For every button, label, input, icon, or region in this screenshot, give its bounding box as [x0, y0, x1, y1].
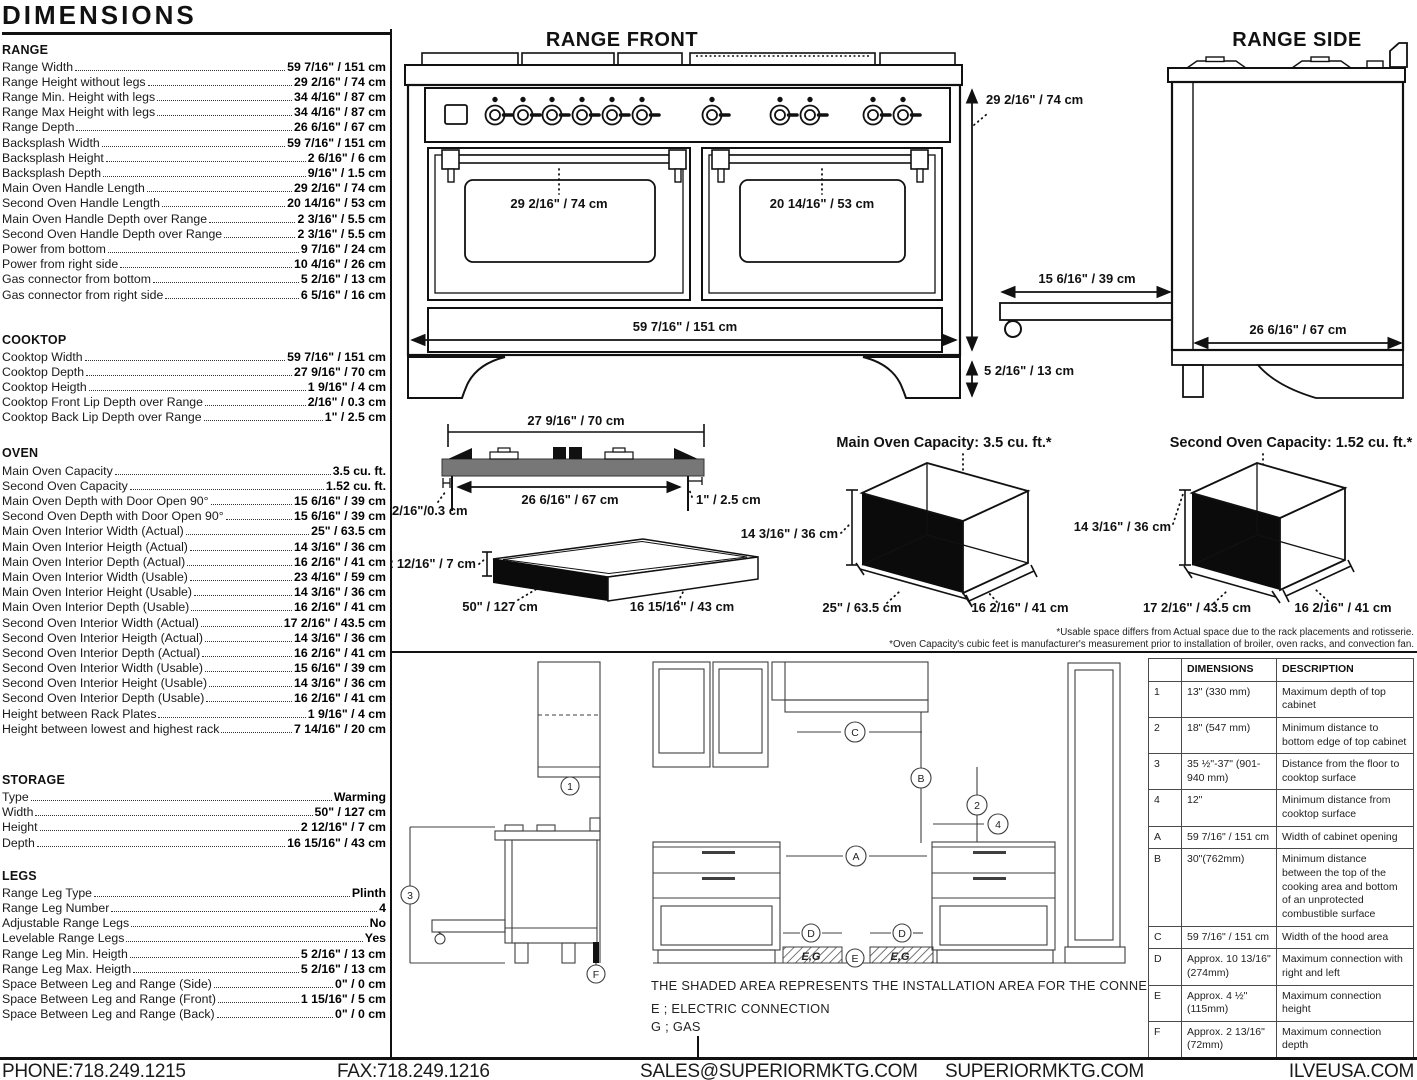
side-bottom-band	[1172, 350, 1403, 365]
spec-label: Main Oven Interior Width (Actual)	[2, 524, 184, 538]
dot-leader	[115, 474, 331, 475]
row-description: Minimum distance between the top of the …	[1277, 849, 1414, 926]
storage-drawer-drawing: 2 12/16" / 7 cm 50" / 127 cm 16 15/16" /…	[390, 539, 758, 614]
spec-row: Main Oven Handle Length 29 2/16" / 74 cm	[2, 180, 386, 195]
spec-sheet-page: DIMENSIONS RANGE Range Width 59 7/16" / …	[0, 0, 1417, 1080]
dot-leader	[130, 957, 299, 958]
spec-value: 1 9/16" / 4 cm	[308, 707, 386, 721]
spec-label: Height between lowest and highest rack	[2, 722, 219, 736]
oven-window	[465, 180, 655, 262]
dot-leader	[226, 519, 292, 520]
spec-value: 2 12/16" / 7 cm	[301, 820, 386, 834]
drawings-top: RANGE FRONT	[390, 28, 1417, 655]
dot-leader	[205, 671, 292, 672]
spec-value: No	[370, 916, 386, 930]
dot-leader	[218, 1002, 299, 1003]
spec-row: Main Oven Interior Heigth (Actual) 14 3/…	[2, 538, 386, 553]
spec-label: Cooktop Front Lip Depth over Range	[2, 395, 203, 409]
spec-row: Range Depth 26 6/16" / 67 cm	[2, 119, 386, 134]
knob-icon	[801, 98, 828, 125]
dot-leader	[165, 298, 299, 299]
spec-label: Adjustable Range Legs	[2, 916, 129, 930]
spec-row: Main Oven Interior Depth (Actual) 16 2/1…	[2, 554, 386, 569]
spec-label: Space Between Leg and Range (Front)	[2, 992, 216, 1006]
svg-text:C: C	[851, 727, 859, 739]
row-key: 1	[1149, 681, 1182, 717]
row-key: F	[1149, 1021, 1182, 1057]
spec-label: Cooktop Width	[2, 350, 83, 364]
row-dimension: Approx. 2 13/16" (72mm)	[1182, 1021, 1277, 1057]
spec-label: Range Width	[2, 60, 73, 74]
dot-leader	[211, 504, 292, 505]
row-description: Width of the hood area	[1277, 926, 1414, 949]
spec-label: Range Depth	[2, 120, 74, 134]
spec-value: 34 4/16" / 87 cm	[294, 90, 386, 104]
spec-row: Main Oven Interior Width (Usable) 23 4/1…	[2, 569, 386, 584]
spec-row: Range Min. Height with legs 34 4/16" / 8…	[2, 89, 386, 104]
table-row: 3 35 ½"-37" (901-940 mm) Distance from t…	[1149, 754, 1414, 790]
spec-label: Main Oven Interior Width (Usable)	[2, 570, 188, 584]
spec-label: Backsplash Height	[2, 151, 104, 165]
spec-row: Second Oven Interior Width (Actual) 17 2…	[2, 614, 386, 629]
spec-row: Gas connector from bottom 5 2/16" / 13 c…	[2, 271, 386, 286]
spec-value: Yes	[365, 931, 386, 945]
spec-row: Power from right side 10 4/16" / 26 cm	[2, 256, 386, 271]
row-key: A	[1149, 826, 1182, 849]
spec-row: Height between lowest and highest rack 7…	[2, 721, 386, 736]
side-install-view: 1 F 3	[401, 662, 605, 983]
spec-label: Levelable Range Legs	[2, 931, 124, 945]
side-body	[1172, 82, 1403, 350]
spec-label: Main Oven Interior Heigth (Actual)	[2, 540, 188, 554]
legs-height-dim: 5 2/16" / 13 cm	[984, 363, 1074, 378]
back-lip-dim: 1" / 2.5 cm	[696, 492, 761, 507]
table-row: 2 18" (547 mm) Minimum distance to botto…	[1149, 717, 1414, 753]
cooktop-top-dim: 27 9/16" / 70 cm	[527, 413, 624, 428]
spec-row: Type Warming	[2, 789, 386, 804]
spec-label: Range Leg Min. Heigth	[2, 947, 128, 961]
row-dimension: 30"(762mm)	[1182, 849, 1277, 926]
svg-text:B: B	[917, 773, 924, 785]
spec-row: Range Leg Type Plinth	[2, 885, 386, 900]
row-key: E	[1149, 985, 1182, 1021]
spec-value: 27 9/16" / 70 cm	[294, 365, 386, 379]
spec-value: 16 2/16" / 41 cm	[294, 646, 386, 660]
storage-height-dim: 2 12/16" / 7 cm	[390, 556, 476, 571]
spec-row: Second Oven Interior Height (Usable) 14 …	[2, 675, 386, 690]
spec-row: Range Height without legs 29 2/16" / 74 …	[2, 74, 386, 89]
spec-row: Main Oven Handle Depth over Range 2 3/16…	[2, 210, 386, 225]
row-dimension: Approx. 10 13/16" (274mm)	[1182, 949, 1277, 985]
dot-leader	[190, 580, 292, 581]
spec-value: 1" / 2.5 cm	[325, 410, 386, 424]
eg-label: E,G	[891, 951, 910, 963]
dot-leader	[37, 846, 285, 847]
spec-row: Backsplash Depth 9/16" / 1.5 cm	[2, 165, 386, 180]
spec-row: Range Width 59 7/16" / 151 cm	[2, 59, 386, 74]
spec-label: Width	[2, 805, 33, 819]
range-body	[408, 85, 960, 355]
range-side-drawing: RANGE SIDE 15 6/16" / 39 cm 26 6/16" / 6…	[1000, 29, 1407, 398]
range-front-title: RANGE FRONT	[546, 29, 698, 51]
dot-leader	[40, 830, 299, 831]
spec-value: 26 6/16" / 67 cm	[294, 120, 386, 134]
spec-row: Cooktop Heigth 1 9/16" / 4 cm	[2, 379, 386, 394]
spec-label: Height between Rack Plates	[2, 707, 156, 721]
side-front-leg	[1183, 365, 1203, 397]
section-storage: STORAGE Type Warming Width 50" / 127 cm …	[2, 773, 386, 850]
row-key: 3	[1149, 754, 1182, 790]
cooktop-bottom-dim: 26 6/16" / 67 cm	[521, 492, 618, 507]
table-header-key	[1149, 659, 1182, 682]
second-oven-width-dim: 17 2/16" / 43.5 cm	[1143, 600, 1251, 615]
spec-row: Adjustable Range Legs No	[2, 915, 386, 930]
table-header-dimensions: DIMENSIONS	[1182, 659, 1277, 682]
svg-text:1: 1	[567, 781, 573, 793]
dot-leader	[103, 176, 306, 177]
front-install-view: C B 2 4 A	[653, 662, 1125, 967]
spec-row: Backsplash Width 59 7/16" / 151 cm	[2, 134, 386, 149]
connection-zone	[593, 942, 599, 963]
storage-width-dim: 50" / 127 cm	[462, 599, 538, 614]
knob-icon	[603, 98, 630, 125]
row-description: Minimum distance from cooktop surface	[1277, 790, 1414, 826]
footnote-1: *Usable space differs from Actual space …	[1056, 627, 1414, 638]
spec-value: 5 2/16" / 13 cm	[301, 947, 386, 961]
spec-label: Power from bottom	[2, 242, 106, 256]
dot-leader	[206, 701, 292, 702]
row-description: Width of cabinet opening	[1277, 826, 1414, 849]
dot-leader	[187, 565, 292, 566]
spec-value: 5 2/16" / 13 cm	[301, 272, 386, 286]
pullout-shelf	[1000, 303, 1172, 320]
display-window	[445, 105, 467, 124]
spec-value: 29 2/16" / 74 cm	[294, 75, 386, 89]
shelf-dim: 15 6/16" / 39 cm	[1038, 271, 1135, 286]
svg-text:3: 3	[407, 890, 413, 902]
dot-leader	[108, 252, 299, 253]
knob-icon	[573, 98, 600, 125]
dot-leader	[158, 717, 305, 718]
second-oven-title: Second Oven Capacity: 1.52 cu. ft.*	[1170, 435, 1413, 451]
spec-label: Cooktop Depth	[2, 365, 84, 379]
dot-leader	[148, 85, 292, 86]
spec-value: 16 2/16" / 41 cm	[294, 555, 386, 569]
spec-label: Type	[2, 790, 29, 804]
main-door-dim: 29 2/16" / 74 cm	[510, 196, 607, 211]
spec-label: Power from right side	[2, 257, 118, 271]
spec-value: 16 15/16" / 43 cm	[287, 836, 386, 850]
spec-value: 14 3/16" / 36 cm	[294, 540, 386, 554]
second-door-dim: 20 14/16" / 53 cm	[770, 196, 874, 211]
knob-icon	[543, 98, 570, 125]
spec-label: Second Oven Interior Height (Usable)	[2, 676, 207, 690]
spec-value: 14 3/16" / 36 cm	[294, 585, 386, 599]
spec-value: 2/16" / 0.3 cm	[308, 395, 386, 409]
dot-leader	[131, 926, 367, 927]
knob-icon	[771, 98, 798, 125]
spec-value: 0" / 0 cm	[335, 1007, 386, 1021]
spec-row: Second Oven Handle Length 20 14/16" / 53…	[2, 195, 386, 210]
h-bracket	[443, 478, 450, 488]
dot-leader	[205, 641, 292, 642]
installation-diagram: 1 F 3	[390, 655, 1147, 1047]
spec-value: 2 3/16" / 5.5 cm	[297, 227, 386, 241]
eg-label: E,G	[802, 951, 821, 963]
svg-text:D: D	[898, 928, 906, 940]
spec-value: 9/16" / 1.5 cm	[308, 166, 386, 180]
specs-column: DIMENSIONS RANGE Range Width 59 7/16" / …	[2, 2, 386, 1021]
spec-label: Gas connector from right side	[2, 288, 163, 302]
oven-handle	[715, 155, 928, 163]
storage-depth-dim: 16 15/16" / 43 cm	[630, 599, 734, 614]
dot-leader	[204, 420, 323, 421]
table-header-description: DESCRIPTION	[1277, 659, 1414, 682]
row-key: C	[1149, 926, 1182, 949]
row-description: Maximum depth of top cabinet	[1277, 681, 1414, 717]
svg-text:D: D	[807, 928, 815, 940]
spec-value: 9 7/16" / 24 cm	[301, 242, 386, 256]
svg-text:2: 2	[974, 800, 980, 812]
row-dimension: 59 7/16" / 151 cm	[1182, 926, 1277, 949]
second-oven-depth-dim: 16 2/16" / 41 cm	[1294, 600, 1391, 615]
dot-leader	[209, 686, 292, 687]
spec-value: Warming	[334, 790, 386, 804]
spec-label: Depth	[2, 836, 35, 850]
row-dimension: Approx. 4 ½" (115mm)	[1182, 985, 1277, 1021]
section-heading: COOKTOP	[2, 333, 386, 347]
spec-row: Second Oven Interior Depth (Actual) 16 2…	[2, 645, 386, 660]
spec-value: 4	[379, 901, 386, 915]
spec-row: Range Max Height with legs 34 4/16" / 87…	[2, 104, 386, 119]
spec-label: Second Oven Interior Heigth (Actual)	[2, 631, 203, 645]
table-row: A 59 7/16" / 151 cm Width of cabinet ope…	[1149, 826, 1414, 849]
main-oven-door: 29 2/16" / 74 cm	[428, 148, 690, 300]
footer-fax: FAX:718.249.1216	[337, 1061, 490, 1080]
section-oven: OVEN Main Oven Capacity 3.5 cu. ft. Seco…	[2, 446, 386, 735]
oven-handle	[445, 155, 681, 163]
backsplash	[1390, 43, 1407, 67]
spec-value: 59 7/16" / 151 cm	[287, 60, 386, 74]
spec-label: Main Oven Interior Depth (Actual)	[2, 555, 185, 569]
section-heading: OVEN	[2, 446, 386, 460]
section-range: RANGE Range Width 59 7/16" / 151 cm Rang…	[2, 43, 386, 302]
spec-row: Second Oven Depth with Door Open 90° 15 …	[2, 508, 386, 523]
spec-row: Second Oven Handle Depth over Range 2 3/…	[2, 226, 386, 241]
spec-label: Second Oven Handle Depth over Range	[2, 227, 222, 241]
spec-label: Range Leg Max. Heigth	[2, 962, 131, 976]
spec-row: Width 50" / 127 cm	[2, 804, 386, 819]
dot-leader	[205, 405, 306, 406]
dot-leader	[190, 550, 292, 551]
spec-row: Main Oven Depth with Door Open 90° 15 6/…	[2, 493, 386, 508]
row-dimension: 59 7/16" / 151 cm	[1182, 826, 1277, 849]
spec-row: Cooktop Front Lip Depth over Range 2/16"…	[2, 394, 386, 409]
spec-row: Cooktop Depth 27 9/16" / 70 cm	[2, 364, 386, 379]
spec-row: Power from bottom 9 7/16" / 24 cm	[2, 241, 386, 256]
burner-knobs	[486, 98, 921, 125]
spec-label: Gas connector from bottom	[2, 272, 151, 286]
spec-value: 6 5/16" / 16 cm	[301, 288, 386, 302]
electric-legend: E ; ELECTRIC CONNECTION	[651, 1001, 830, 1016]
dot-leader	[194, 595, 292, 596]
table-row: D Approx. 10 13/16" (274mm) Maximum conn…	[1149, 949, 1414, 985]
left-leg	[408, 357, 505, 398]
spec-label: Main Oven Capacity	[2, 464, 113, 478]
section-heading: RANGE	[2, 43, 386, 57]
dot-leader	[201, 626, 282, 627]
spec-value: 3.5 cu. ft.	[333, 464, 386, 478]
spec-label: Range Height without legs	[2, 75, 146, 89]
dot-leader	[126, 941, 362, 942]
main-oven-height-dim: 14 3/16" / 36 cm	[741, 526, 838, 541]
spec-row: Main Oven Interior Width (Actual) 25" / …	[2, 523, 386, 538]
title-underline	[2, 32, 390, 35]
row-description: Maximum connection height	[1277, 985, 1414, 1021]
row-description: Minimum distance to bottom edge of top c…	[1277, 717, 1414, 753]
table-row: C 59 7/16" / 151 cm Width of the hood ar…	[1149, 926, 1414, 949]
spec-label: Second Oven Depth with Door Open 90°	[2, 509, 224, 523]
dot-leader	[224, 237, 295, 238]
dot-leader	[157, 100, 292, 101]
spec-label: Second Oven Interior Width (Usable)	[2, 661, 203, 675]
spec-value: 25" / 63.5 cm	[311, 524, 386, 538]
table-row: E Approx. 4 ½" (115mm) Maximum connectio…	[1149, 985, 1414, 1021]
footer-website: SUPERIORMKTG.COM	[945, 1061, 1144, 1080]
spec-value: 1 9/16" / 4 cm	[308, 380, 386, 394]
table-row: 1 13" (330 mm) Maximum depth of top cabi…	[1149, 681, 1414, 717]
dot-leader	[202, 656, 292, 657]
knob-icon	[864, 98, 891, 125]
row-key: 2	[1149, 717, 1182, 753]
table-row: B 30"(762mm) Minimum distance between th…	[1149, 849, 1414, 926]
dot-leader	[191, 610, 292, 611]
cooktop-profile-drawing: 27 9/16" / 70 cm 2/16"/0.3 cm 26 6/16" /	[392, 413, 761, 518]
knob-icon	[894, 98, 921, 125]
spec-value: 14 3/16" / 36 cm	[294, 631, 386, 645]
spec-value: 0" / 0 cm	[335, 977, 386, 991]
spec-label: Second Oven Interior Width (Actual)	[2, 616, 199, 630]
dot-leader	[162, 206, 285, 207]
footer-phone: PHONE:718.249.1215	[2, 1061, 186, 1080]
spec-value: 17 2/16" / 43.5 cm	[284, 616, 386, 630]
row-dimension: 12"	[1182, 790, 1277, 826]
spec-label: Height	[2, 820, 38, 834]
spec-value: 34 4/16" / 87 cm	[294, 105, 386, 119]
dot-leader	[209, 222, 295, 223]
dot-leader	[133, 972, 299, 973]
dot-leader	[130, 489, 324, 490]
spec-row: Height 2 12/16" / 7 cm	[2, 819, 386, 834]
dot-leader	[86, 375, 292, 376]
row-key: 4	[1149, 790, 1182, 826]
spec-value: 1 15/16" / 5 cm	[301, 992, 386, 1006]
oven-window	[740, 180, 905, 262]
row-description: Maximum connection depth	[1277, 1021, 1414, 1057]
spec-value: 23 4/16" / 59 cm	[294, 570, 386, 584]
spec-row: Range Leg Number 4	[2, 900, 386, 915]
spec-label: Range Leg Number	[2, 901, 109, 915]
spec-value: 15 6/16" / 39 cm	[294, 661, 386, 675]
row-key: D	[1149, 949, 1182, 985]
spec-row: Backsplash Height 2 6/16" / 6 cm	[2, 150, 386, 165]
svg-text:E: E	[851, 953, 858, 965]
section-cooktop: COOKTOP Cooktop Width 59 7/16" / 151 cm …	[2, 333, 386, 425]
footer-website-ilve: ILVEUSA.COM	[1289, 1061, 1414, 1080]
spec-label: Second Oven Interior Depth (Actual)	[2, 646, 200, 660]
footer-rule	[0, 1057, 1417, 1060]
spec-value: 2 3/16" / 5.5 cm	[297, 212, 386, 226]
spec-label: Backsplash Depth	[2, 166, 101, 180]
second-oven-height-dim: 14 3/16" / 36 cm	[1074, 519, 1171, 534]
row-description: Maximum connection with right and left	[1277, 949, 1414, 985]
spec-label: Second Oven Handle Length	[2, 196, 160, 210]
shaded-area-note: THE SHADED AREA REPRESENTS THE INSTALLAT…	[651, 978, 1147, 993]
spec-label: Main Oven Interior Height (Usable)	[2, 585, 192, 599]
spec-row: Main Oven Interior Height (Usable) 14 3/…	[2, 584, 386, 599]
spec-row: Range Leg Max. Heigth 5 2/16" / 13 cm	[2, 961, 386, 976]
spec-value: 20 14/16" / 53 cm	[287, 196, 386, 210]
dot-leader	[217, 1017, 333, 1018]
spec-label: Main Oven Handle Length	[2, 181, 145, 195]
dot-leader	[31, 800, 332, 801]
front-lip-dim: 2/16"/0.3 cm	[392, 503, 468, 518]
dot-leader	[214, 987, 333, 988]
spec-row: Second Oven Interior Width (Usable) 15 6…	[2, 660, 386, 675]
cooktop-slab-profile	[442, 459, 704, 476]
spec-row: Depth 16 15/16" / 43 cm	[2, 834, 386, 849]
spec-value: 1.52 cu. ft.	[326, 479, 386, 493]
dot-leader	[35, 815, 312, 816]
spec-row: Second Oven Interior Depth (Usable) 16 2…	[2, 690, 386, 705]
svg-text:A: A	[852, 851, 859, 863]
dot-leader	[106, 161, 306, 162]
spec-row: Main Oven Capacity 3.5 cu. ft.	[2, 462, 386, 477]
table-row: F Approx. 2 13/16" (72mm) Maximum connec…	[1149, 1021, 1414, 1057]
dot-leader	[157, 115, 292, 116]
dot-leader	[85, 360, 286, 361]
spec-row: Cooktop Width 59 7/16" / 151 cm	[2, 349, 386, 364]
spec-row: Levelable Range Legs Yes	[2, 930, 386, 945]
spec-row: Second Oven Interior Heigth (Actual) 14 …	[2, 630, 386, 645]
spec-value: 14 3/16" / 36 cm	[294, 676, 386, 690]
spec-row: Space Between Leg and Range (Back) 0" / …	[2, 1006, 386, 1021]
gas-legend: G ; GAS	[651, 1019, 701, 1034]
depth-dim: 26 6/16" / 67 cm	[1249, 322, 1346, 337]
spec-value: 10 4/16" / 26 cm	[294, 257, 386, 271]
spec-value: 59 7/16" / 151 cm	[287, 350, 386, 364]
caster-wheel-icon	[435, 934, 445, 944]
spec-row: Range Leg Min. Heigth 5 2/16" / 13 cm	[2, 945, 386, 960]
spec-value: 2 6/16" / 6 cm	[308, 151, 386, 165]
row-key: B	[1149, 849, 1182, 926]
row-dimension: 13" (330 mm)	[1182, 681, 1277, 717]
spec-value: 5 2/16" / 13 cm	[301, 962, 386, 976]
table-row: 4 12" Minimum distance from cooktop surf…	[1149, 790, 1414, 826]
dot-leader	[89, 390, 306, 391]
section-heading: STORAGE	[2, 773, 386, 787]
spec-label: Range Max Height with legs	[2, 105, 155, 119]
knob-icon	[703, 98, 730, 125]
cooktop-slab	[405, 65, 962, 85]
spec-row: Height between Rack Plates 1 9/16" / 4 c…	[2, 705, 386, 720]
main-oven-title: Main Oven Capacity: 3.5 cu. ft.*	[836, 435, 1051, 451]
caster-wheel-icon	[1005, 321, 1021, 337]
main-oven-width-dim: 25" / 63.5 cm	[822, 600, 901, 615]
spec-row: Space Between Leg and Range (Front) 1 15…	[2, 991, 386, 1006]
spec-row: Main Oven Interior Depth (Usable) 16 2/1…	[2, 599, 386, 614]
spec-value: 16 2/16" / 41 cm	[294, 600, 386, 614]
